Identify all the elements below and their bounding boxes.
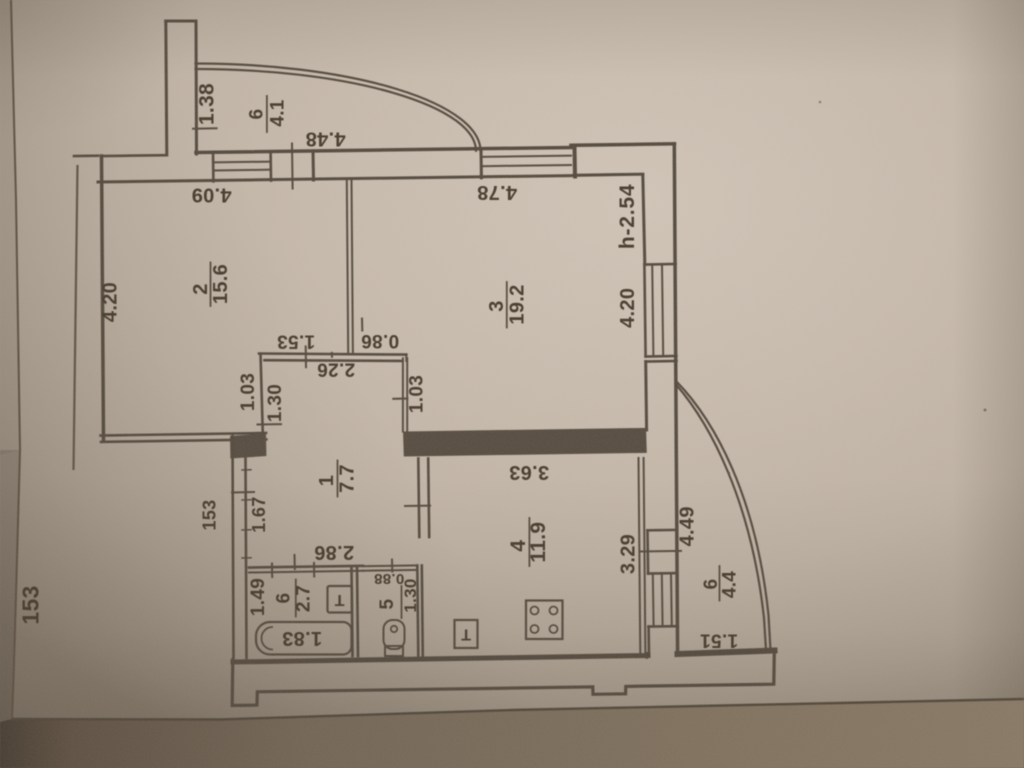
svg-text:4.48: 4.48 <box>305 128 345 150</box>
svg-text:5: 5 <box>377 598 398 609</box>
svg-text:3.63: 3.63 <box>509 461 549 483</box>
svg-text:153: 153 <box>18 585 44 624</box>
svg-text:2: 2 <box>190 283 212 294</box>
svg-text:1.38: 1.38 <box>196 83 219 125</box>
svg-text:4.20: 4.20 <box>617 288 639 328</box>
svg-text:4.78: 4.78 <box>477 181 517 203</box>
svg-text:2.7: 2.7 <box>294 585 315 612</box>
svg-text:15.6: 15.6 <box>210 264 232 304</box>
svg-text:2.86: 2.86 <box>314 541 354 563</box>
svg-text:T: T <box>461 626 471 643</box>
svg-text:0.88: 0.88 <box>374 570 404 587</box>
svg-text:1.67: 1.67 <box>249 496 269 532</box>
svg-text:2.26: 2.26 <box>317 359 355 380</box>
svg-text:0.86: 0.86 <box>361 330 399 351</box>
svg-text:1.83: 1.83 <box>282 627 322 649</box>
svg-text:4.49: 4.49 <box>677 506 699 546</box>
svg-text:1.03: 1.03 <box>238 373 259 411</box>
svg-text:1.53: 1.53 <box>277 331 315 352</box>
svg-text:11.9: 11.9 <box>527 522 550 563</box>
svg-text:153: 153 <box>200 500 220 531</box>
svg-text:3.29: 3.29 <box>618 534 640 574</box>
svg-text:h-2.54: h-2.54 <box>616 184 639 250</box>
svg-text:1.03: 1.03 <box>407 375 428 413</box>
svg-text:4.20: 4.20 <box>100 282 122 322</box>
svg-text:19.2: 19.2 <box>507 284 529 324</box>
svg-text:4.1: 4.1 <box>268 99 289 126</box>
svg-text:4.4: 4.4 <box>720 571 741 598</box>
svg-text:3: 3 <box>486 300 508 311</box>
svg-text:4.09: 4.09 <box>191 184 231 206</box>
svg-text:T: T <box>334 591 344 608</box>
svg-text:1.30: 1.30 <box>265 384 286 422</box>
svg-text:1: 1 <box>316 475 338 486</box>
svg-text:7.7: 7.7 <box>337 464 359 493</box>
svg-text:6: 6 <box>274 593 295 604</box>
svg-text:1.49: 1.49 <box>248 578 269 616</box>
svg-text:6: 6 <box>247 109 268 120</box>
svg-text:1.51: 1.51 <box>700 630 738 651</box>
